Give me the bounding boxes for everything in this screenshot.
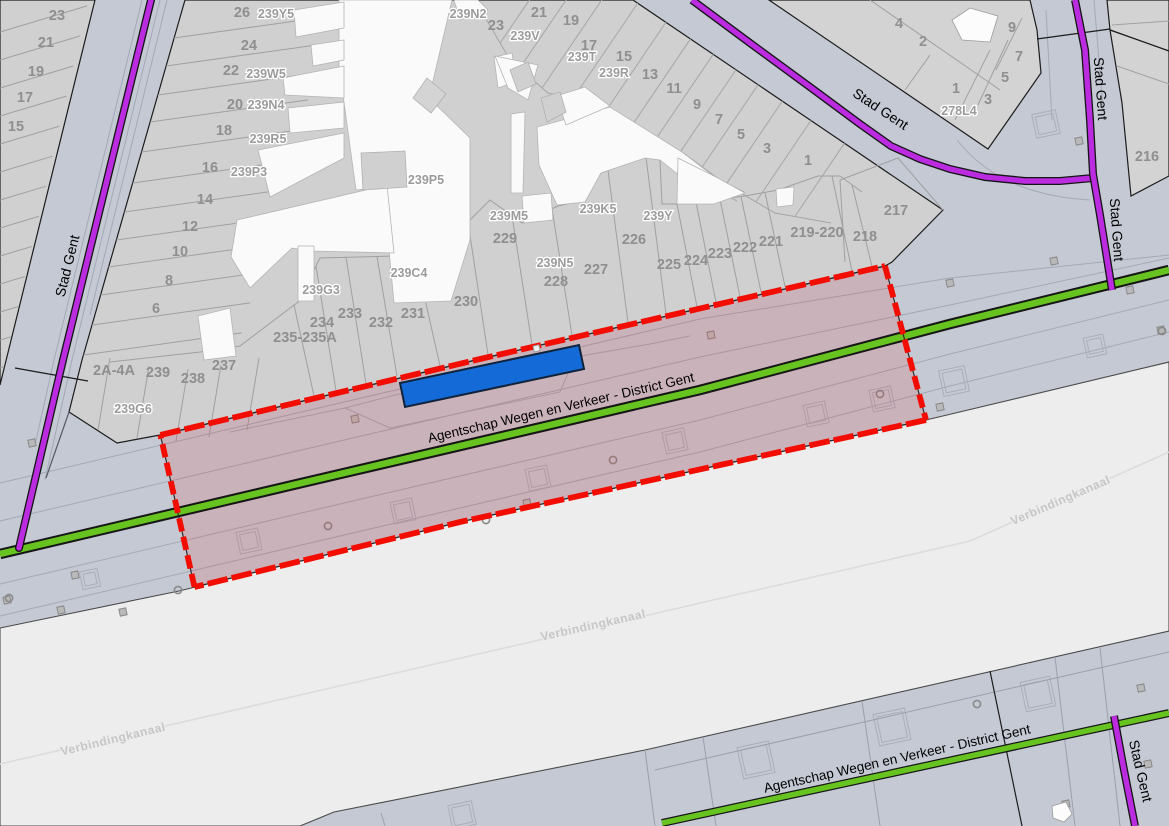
svg-text:235-235A: 235-235A bbox=[273, 330, 337, 346]
svg-text:239N5: 239N5 bbox=[537, 256, 574, 270]
svg-text:239C4: 239C4 bbox=[391, 266, 428, 280]
svg-text:16: 16 bbox=[202, 160, 218, 176]
svg-text:12: 12 bbox=[182, 219, 198, 235]
svg-text:233: 233 bbox=[338, 306, 362, 322]
svg-text:239T: 239T bbox=[568, 50, 597, 64]
svg-text:22: 22 bbox=[223, 63, 239, 79]
svg-text:20: 20 bbox=[227, 97, 243, 113]
svg-text:239N2: 239N2 bbox=[450, 7, 487, 21]
svg-text:19: 19 bbox=[28, 64, 44, 80]
svg-text:239P5: 239P5 bbox=[408, 173, 444, 187]
svg-text:8: 8 bbox=[165, 273, 173, 289]
svg-text:239R5: 239R5 bbox=[250, 132, 287, 146]
svg-text:24: 24 bbox=[241, 38, 257, 54]
svg-text:14: 14 bbox=[197, 192, 213, 208]
svg-text:239R: 239R bbox=[599, 66, 629, 80]
svg-text:7: 7 bbox=[715, 112, 723, 128]
svg-text:10: 10 bbox=[172, 244, 188, 260]
svg-text:221: 221 bbox=[759, 234, 783, 250]
svg-text:5: 5 bbox=[1001, 70, 1009, 86]
svg-text:239: 239 bbox=[146, 365, 170, 381]
svg-text:2: 2 bbox=[919, 34, 927, 50]
svg-text:238: 238 bbox=[181, 371, 205, 387]
svg-text:15: 15 bbox=[8, 119, 24, 135]
svg-text:239Y: 239Y bbox=[643, 209, 673, 223]
svg-text:217: 217 bbox=[884, 203, 908, 219]
svg-text:11: 11 bbox=[666, 81, 681, 97]
svg-text:239G6: 239G6 bbox=[114, 402, 152, 416]
svg-text:5: 5 bbox=[737, 127, 745, 143]
svg-text:23: 23 bbox=[488, 18, 504, 34]
svg-text:239Y5: 239Y5 bbox=[258, 7, 294, 21]
svg-text:18: 18 bbox=[216, 123, 232, 139]
svg-text:15: 15 bbox=[616, 49, 632, 65]
svg-text:6: 6 bbox=[152, 301, 160, 317]
svg-text:239K5: 239K5 bbox=[580, 202, 617, 216]
svg-text:26: 26 bbox=[234, 5, 250, 21]
svg-text:239W5: 239W5 bbox=[246, 67, 286, 81]
svg-text:239N4: 239N4 bbox=[248, 98, 285, 112]
svg-text:232: 232 bbox=[369, 315, 393, 331]
svg-text:3: 3 bbox=[984, 92, 992, 108]
svg-text:1: 1 bbox=[952, 81, 960, 97]
svg-text:7: 7 bbox=[1015, 49, 1023, 65]
svg-text:3: 3 bbox=[763, 141, 771, 157]
svg-text:216: 216 bbox=[1135, 149, 1159, 165]
svg-text:226: 226 bbox=[622, 232, 646, 248]
svg-text:228: 228 bbox=[544, 274, 568, 290]
svg-text:17: 17 bbox=[17, 90, 33, 106]
svg-text:9: 9 bbox=[1008, 20, 1016, 36]
svg-text:2A-4A: 2A-4A bbox=[93, 363, 135, 379]
svg-text:21: 21 bbox=[38, 35, 54, 51]
svg-text:278L4: 278L4 bbox=[941, 104, 976, 118]
svg-text:239M5: 239M5 bbox=[490, 209, 528, 223]
svg-text:222: 222 bbox=[733, 240, 757, 256]
svg-text:4: 4 bbox=[895, 16, 903, 32]
svg-text:225: 225 bbox=[657, 257, 681, 273]
svg-text:9: 9 bbox=[693, 97, 701, 113]
svg-text:239P3: 239P3 bbox=[231, 165, 267, 179]
svg-text:218: 218 bbox=[853, 229, 877, 245]
svg-text:13: 13 bbox=[642, 67, 658, 83]
svg-text:21: 21 bbox=[531, 5, 547, 21]
svg-text:227: 227 bbox=[584, 262, 608, 278]
svg-text:239G3: 239G3 bbox=[302, 283, 340, 297]
svg-text:237: 237 bbox=[212, 358, 236, 374]
svg-text:230: 230 bbox=[454, 294, 478, 310]
svg-text:229: 229 bbox=[493, 231, 517, 247]
svg-text:234: 234 bbox=[310, 315, 334, 331]
svg-text:19: 19 bbox=[563, 13, 579, 29]
svg-text:223: 223 bbox=[708, 246, 732, 262]
svg-text:219-220: 219-220 bbox=[790, 225, 843, 241]
svg-text:231: 231 bbox=[401, 306, 425, 322]
svg-text:1: 1 bbox=[804, 153, 812, 169]
svg-text:224: 224 bbox=[684, 253, 708, 269]
svg-text:23: 23 bbox=[49, 8, 65, 24]
svg-text:239V: 239V bbox=[510, 29, 540, 43]
